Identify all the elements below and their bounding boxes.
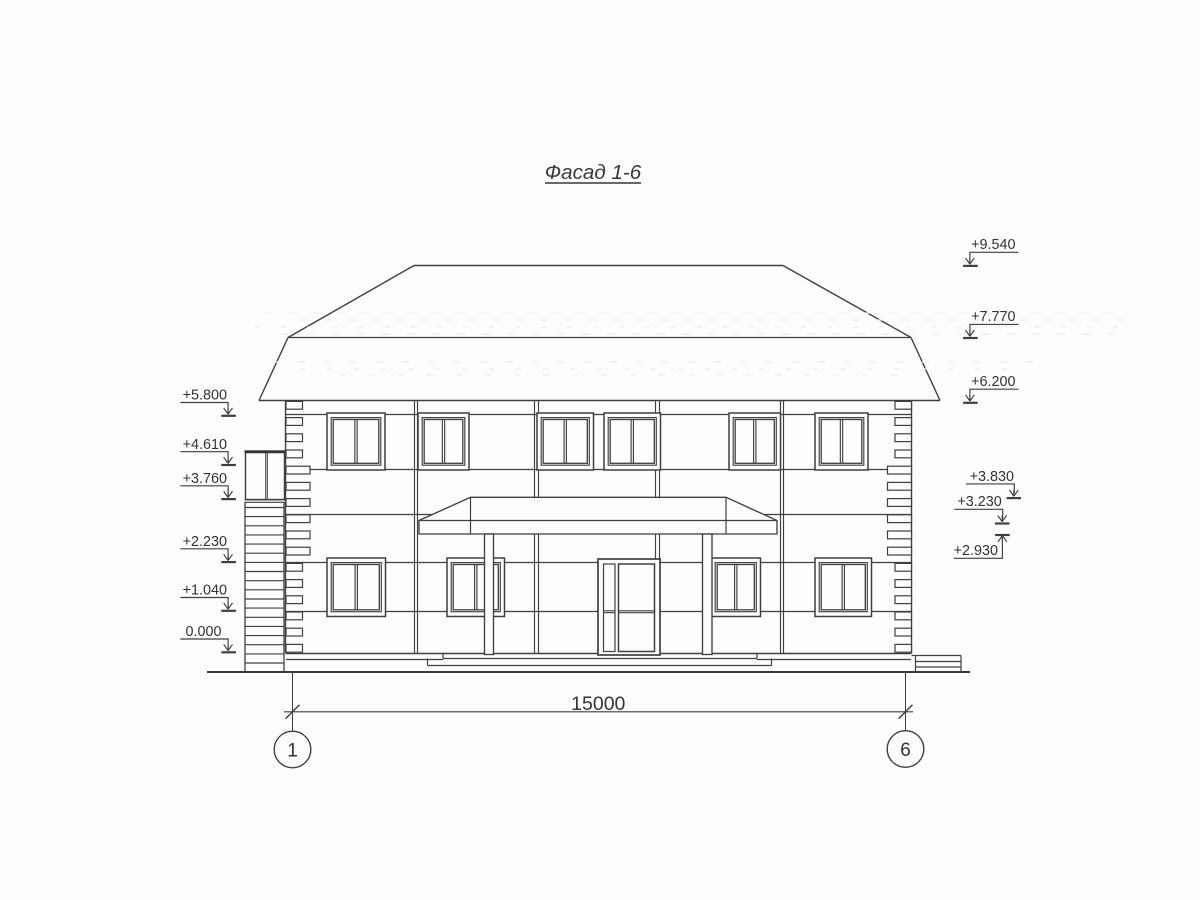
svg-text:+3.760: +3.760 xyxy=(183,471,227,487)
svg-text:+2.930: +2.930 xyxy=(954,543,998,559)
svg-text:+5.800: +5.800 xyxy=(183,388,227,404)
svg-text:+9.540: +9.540 xyxy=(971,237,1015,253)
svg-text:6: 6 xyxy=(900,740,911,761)
svg-text:+6.200: +6.200 xyxy=(971,374,1015,390)
svg-text:+7.770: +7.770 xyxy=(971,309,1015,325)
svg-text:+4.610: +4.610 xyxy=(183,437,227,453)
svg-text:+3.230: +3.230 xyxy=(957,494,1001,510)
svg-text:0.000: 0.000 xyxy=(185,624,221,640)
svg-text:15000: 15000 xyxy=(571,693,625,715)
svg-text:+2.230: +2.230 xyxy=(183,534,227,550)
svg-text:Фасад 1-6: Фасад 1-6 xyxy=(545,161,642,184)
svg-text:+3.830: +3.830 xyxy=(970,469,1014,485)
svg-text:+1.040: +1.040 xyxy=(183,583,227,599)
svg-text:1: 1 xyxy=(287,740,298,761)
